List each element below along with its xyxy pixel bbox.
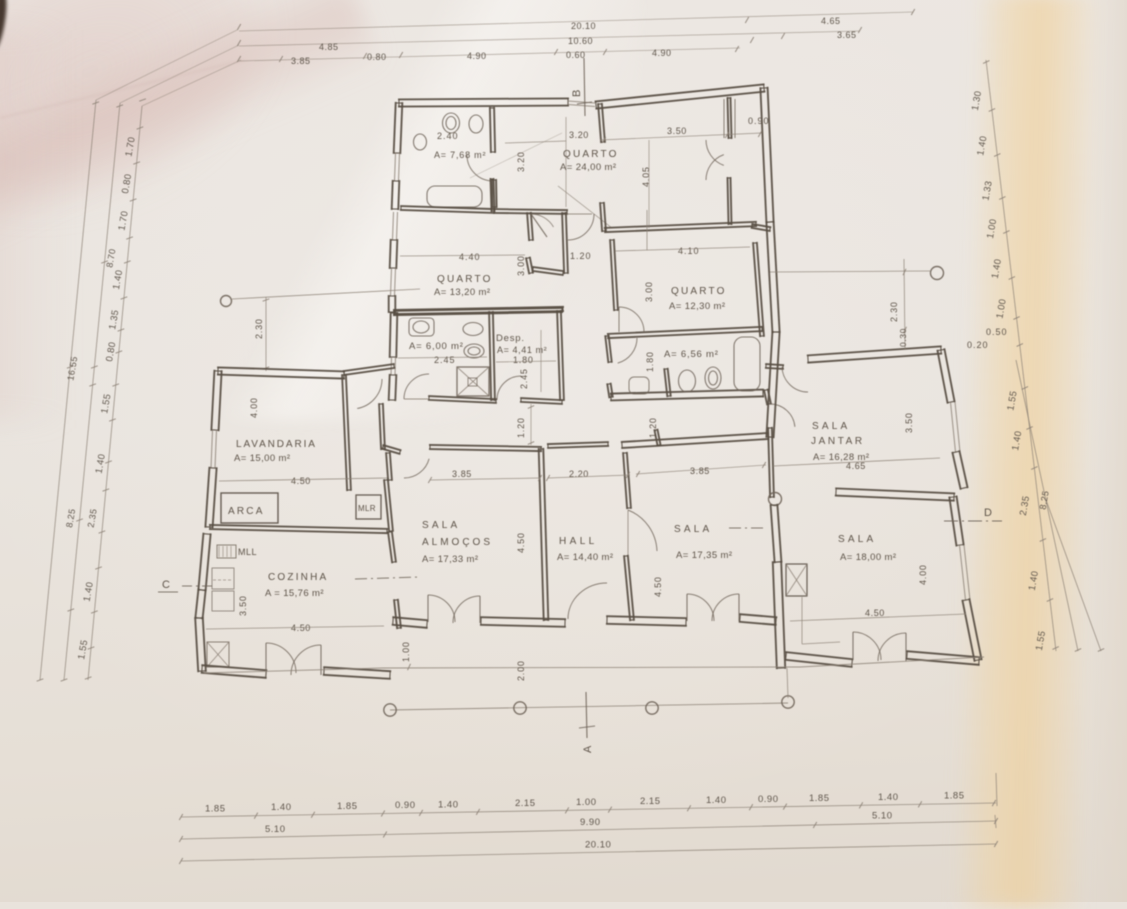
svg-text:3.50: 3.50: [238, 595, 248, 616]
svg-text:3.00: 3.00: [516, 255, 526, 276]
svg-text:4.50: 4.50: [291, 623, 311, 633]
svg-text:SALA: SALA: [838, 534, 876, 545]
svg-text:20.10: 20.10: [585, 839, 611, 850]
svg-text:1.40: 1.40: [975, 135, 989, 157]
svg-text:1.70: 1.70: [116, 210, 130, 232]
svg-text:QUARTO: QUARTO: [437, 274, 493, 285]
svg-text:3.20: 3.20: [516, 151, 526, 172]
svg-text:2.35: 2.35: [1018, 495, 1032, 517]
svg-text:SALA: SALA: [812, 421, 850, 432]
svg-text:4.50: 4.50: [865, 608, 885, 618]
svg-text:1.40: 1.40: [94, 453, 108, 475]
svg-text:QUARTO: QUARTO: [563, 149, 619, 160]
svg-text:4.50: 4.50: [653, 576, 663, 597]
svg-text:MLL: MLL: [238, 547, 257, 557]
svg-text:1.20: 1.20: [570, 251, 592, 261]
svg-text:8.70: 8.70: [104, 248, 117, 269]
svg-text:0.90: 0.90: [395, 800, 416, 811]
svg-text:HALL: HALL: [559, 536, 598, 547]
svg-text:COZINHA: COZINHA: [268, 572, 328, 583]
svg-text:2.30: 2.30: [254, 318, 264, 339]
svg-text:1.55: 1.55: [76, 639, 90, 661]
svg-text:D: D: [984, 507, 992, 519]
svg-text:A = 15,76 m²: A = 15,76 m²: [265, 588, 324, 599]
svg-text:ARCA: ARCA: [228, 506, 265, 517]
svg-text:B: B: [571, 90, 583, 97]
svg-text:A= 7,68 m²: A= 7,68 m²: [434, 150, 486, 160]
svg-text:C: C: [162, 579, 170, 591]
svg-text:3.50: 3.50: [904, 412, 914, 433]
svg-text:10.60: 10.60: [568, 36, 593, 46]
svg-text:1.40: 1.40: [111, 269, 125, 291]
svg-text:MLR: MLR: [358, 504, 376, 513]
svg-text:1.55: 1.55: [1005, 390, 1019, 412]
svg-text:1.30: 1.30: [970, 90, 984, 112]
svg-text:Desp.: Desp.: [496, 333, 525, 344]
svg-text:5.10: 5.10: [265, 824, 286, 835]
svg-text:1.00: 1.00: [994, 298, 1008, 320]
svg-text:4.90: 4.90: [652, 48, 672, 58]
svg-text:A= 17,35 m²: A= 17,35 m²: [676, 550, 732, 561]
svg-text:2.45: 2.45: [434, 355, 456, 365]
svg-text:0.80: 0.80: [104, 341, 118, 363]
svg-text:1.85: 1.85: [809, 793, 830, 804]
svg-text:3.20: 3.20: [569, 130, 589, 140]
svg-text:4.85: 4.85: [319, 42, 339, 52]
svg-text:0.90: 0.90: [758, 794, 779, 805]
svg-text:9.90: 9.90: [580, 817, 601, 828]
svg-text:0.20: 0.20: [967, 340, 989, 350]
svg-text:0.80: 0.80: [367, 52, 387, 62]
svg-text:4.50: 4.50: [516, 532, 526, 553]
svg-text:3.85: 3.85: [291, 56, 311, 66]
svg-text:A= 18,00 m²: A= 18,00 m²: [840, 552, 896, 563]
svg-text:3.00: 3.00: [644, 281, 654, 302]
svg-text:4.65: 4.65: [821, 16, 841, 26]
svg-text:1.85: 1.85: [944, 791, 965, 802]
svg-text:5.10: 5.10: [872, 810, 893, 821]
svg-text:SALA: SALA: [674, 524, 712, 535]
svg-text:3.85: 3.85: [690, 466, 710, 476]
svg-text:1.55: 1.55: [1034, 630, 1048, 652]
svg-text:2.40: 2.40: [437, 131, 459, 141]
svg-text:2.20: 2.20: [569, 469, 589, 479]
svg-text:2.35: 2.35: [86, 508, 99, 529]
svg-text:1.80: 1.80: [645, 351, 655, 372]
svg-text:A: A: [582, 745, 594, 753]
svg-text:2.15: 2.15: [515, 798, 536, 809]
svg-text:1.55: 1.55: [99, 393, 113, 415]
svg-text:4.10: 4.10: [678, 246, 700, 256]
svg-text:1.35: 1.35: [107, 309, 121, 331]
svg-text:4.40: 4.40: [459, 252, 481, 262]
svg-text:A= 17,33 m²: A= 17,33 m²: [422, 554, 478, 565]
svg-text:1.20: 1.20: [648, 417, 658, 438]
svg-text:1.33: 1.33: [981, 180, 995, 202]
svg-text:0.50: 0.50: [986, 327, 1008, 337]
svg-text:0.80: 0.80: [120, 173, 134, 195]
svg-text:2.30: 2.30: [889, 301, 899, 322]
svg-text:1.80: 1.80: [513, 355, 534, 365]
svg-text:1.40: 1.40: [271, 802, 292, 813]
svg-text:8.25: 8.25: [64, 508, 77, 529]
svg-text:A= 4,41 m²: A= 4,41 m²: [497, 345, 547, 355]
svg-text:1.00: 1.00: [401, 641, 411, 662]
svg-text:4.05: 4.05: [641, 166, 651, 187]
svg-text:1.00: 1.00: [576, 797, 597, 808]
svg-text:2.15: 2.15: [640, 796, 661, 807]
svg-text:1.40: 1.40: [82, 581, 96, 603]
svg-text:LAVANDARIA: LAVANDARIA: [236, 439, 317, 450]
svg-text:1.40: 1.40: [438, 799, 459, 810]
svg-text:A= 12,30 m²: A= 12,30 m²: [669, 301, 725, 312]
svg-text:QUARTO: QUARTO: [671, 286, 727, 297]
svg-text:0.90: 0.90: [748, 116, 770, 126]
svg-text:1.85: 1.85: [337, 801, 358, 812]
svg-text:4.00: 4.00: [918, 564, 928, 585]
svg-text:4.50: 4.50: [291, 476, 311, 486]
svg-text:4.90: 4.90: [467, 51, 487, 61]
svg-text:A= 6,00 m²: A= 6,00 m²: [409, 341, 464, 352]
svg-text:JANTAR: JANTAR: [811, 436, 865, 447]
svg-text:0.30: 0.30: [898, 328, 908, 347]
svg-text:A= 15,00 m²: A= 15,00 m²: [234, 453, 290, 464]
svg-text:1.40: 1.40: [878, 792, 899, 803]
svg-text:1.40: 1.40: [706, 795, 727, 806]
svg-text:1.40: 1.40: [990, 258, 1004, 280]
svg-text:2.00: 2.00: [516, 660, 526, 681]
svg-text:SALA: SALA: [422, 520, 460, 531]
svg-text:2.45: 2.45: [519, 368, 529, 389]
svg-text:20.10: 20.10: [571, 21, 596, 31]
svg-text:3.50: 3.50: [667, 126, 687, 136]
svg-text:3.65: 3.65: [837, 30, 857, 40]
svg-text:ALMOÇOS: ALMOÇOS: [422, 537, 493, 548]
svg-text:A= 6,56 m²: A= 6,56 m²: [664, 349, 719, 360]
svg-text:1.00: 1.00: [985, 218, 999, 240]
svg-text:1.70: 1.70: [123, 136, 137, 158]
svg-text:1.20: 1.20: [516, 417, 526, 438]
svg-text:1.85: 1.85: [205, 803, 226, 814]
svg-text:1.40: 1.40: [1027, 570, 1041, 592]
svg-text:A= 13,20 m²: A= 13,20 m²: [434, 287, 490, 298]
svg-text:A= 14,40 m²: A= 14,40 m²: [557, 552, 613, 563]
svg-text:0.60: 0.60: [566, 50, 586, 60]
svg-text:3.85: 3.85: [452, 469, 472, 479]
svg-text:A= 24,00 m²: A= 24,00 m²: [560, 162, 616, 173]
svg-text:1.40: 1.40: [1010, 430, 1024, 452]
svg-text:16.55: 16.55: [65, 355, 79, 381]
svg-text:4.00: 4.00: [249, 397, 259, 418]
